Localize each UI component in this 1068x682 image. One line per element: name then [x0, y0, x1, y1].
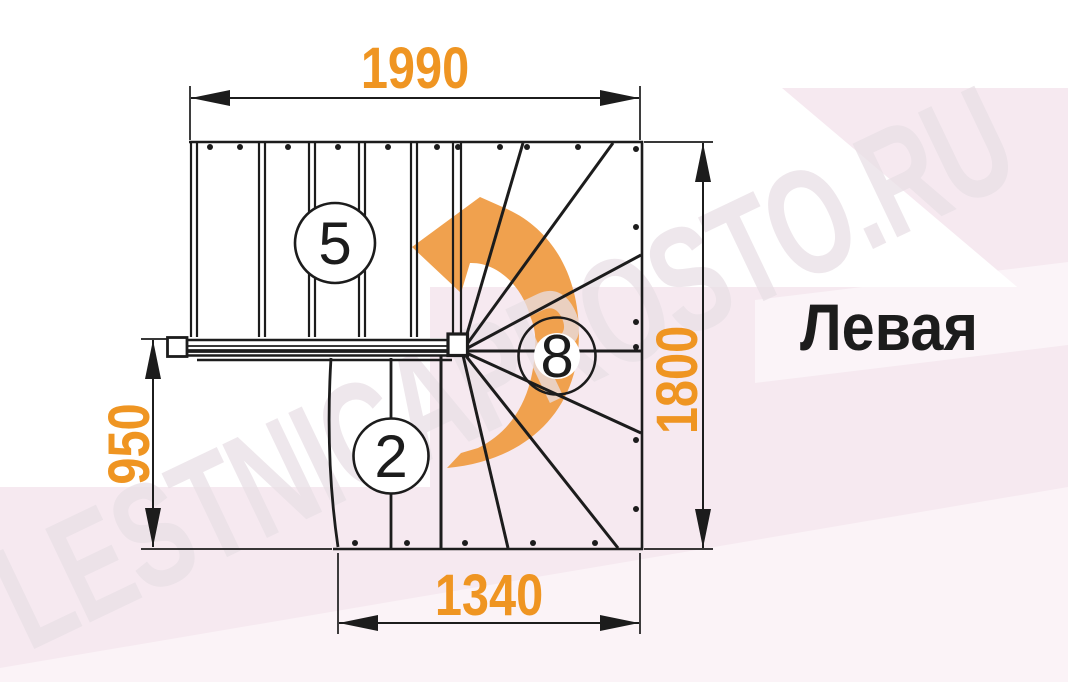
dimension-right-value: 1800 [646, 326, 710, 434]
upper-flight-step-count: 5 [318, 210, 351, 277]
lower-flight-step-count: 2 [374, 423, 407, 490]
stringer-end-post [168, 338, 188, 357]
dimension-left-value: 950 [98, 403, 162, 484]
stair-plan-page: LESTNICAPROSTO.RU [0, 0, 1068, 682]
dimension-top-value: 1990 [361, 37, 469, 101]
stair-plan-drawing: LESTNICAPROSTO.RU [0, 0, 1068, 682]
dimension-bottom-value: 1340 [435, 564, 543, 628]
orientation-label: Левая [800, 291, 978, 365]
newel-post [448, 334, 468, 356]
winder-step-count: 8 [540, 323, 573, 390]
